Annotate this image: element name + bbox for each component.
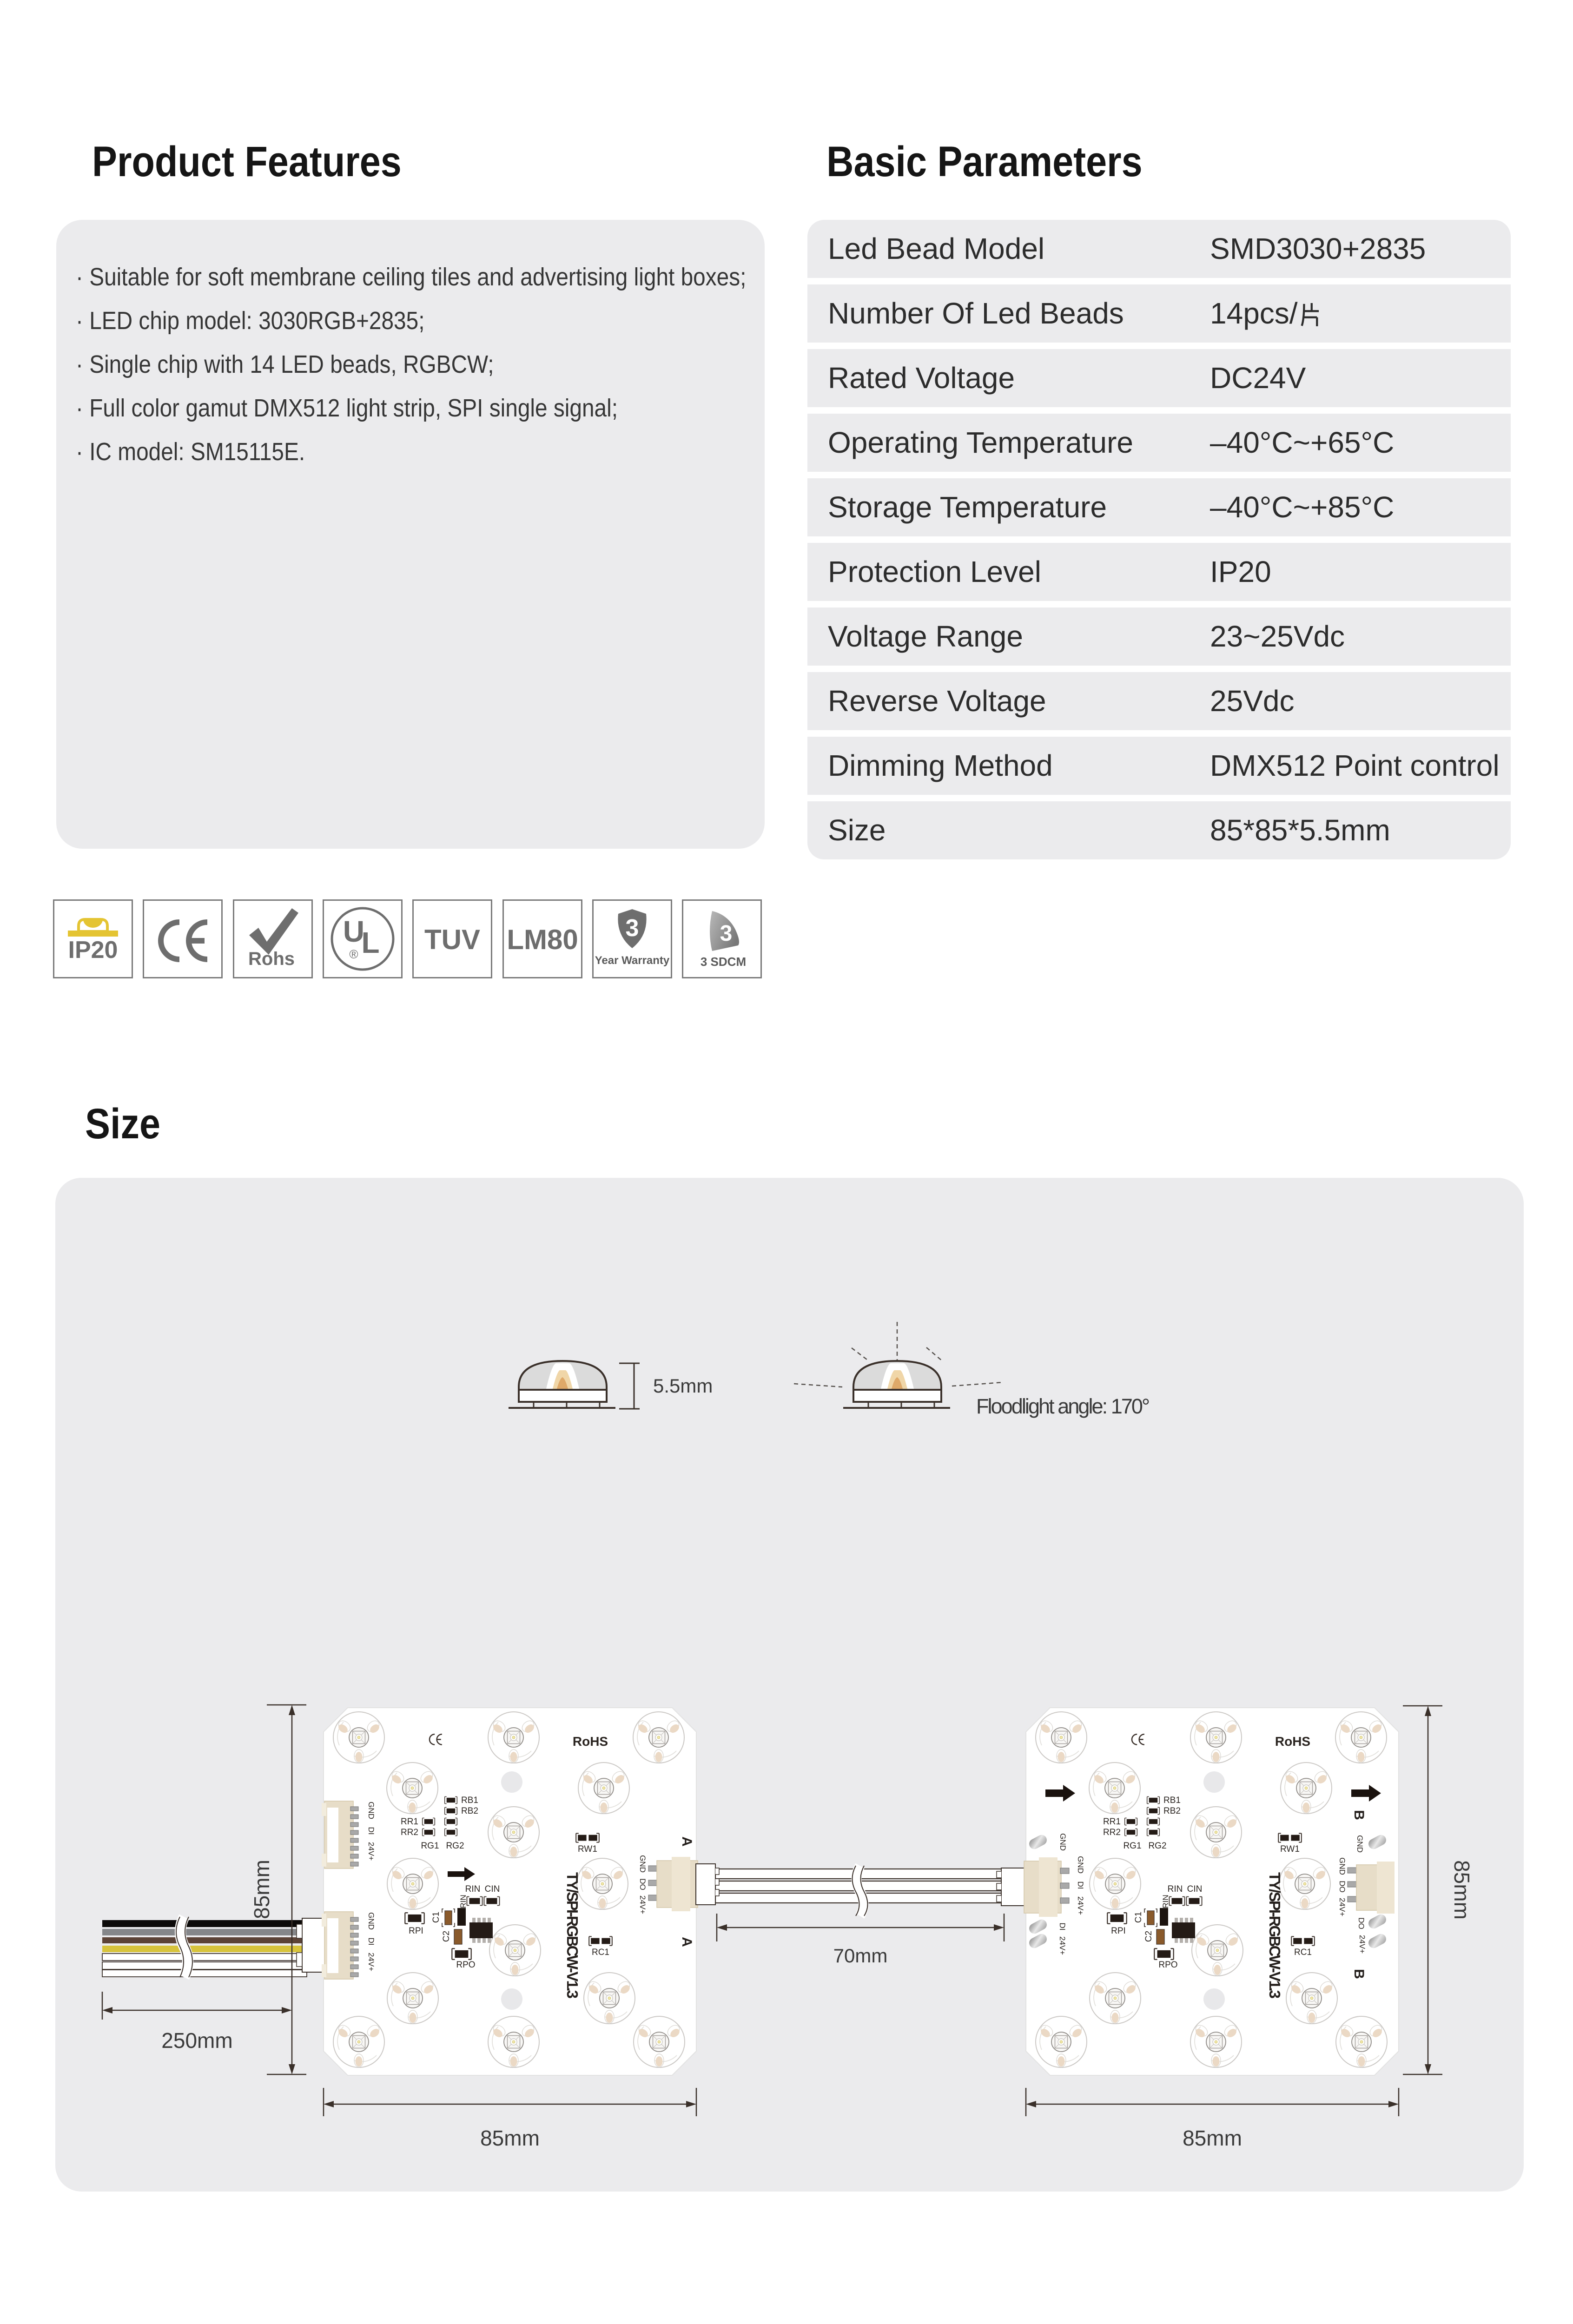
- svg-text:A: A: [679, 1836, 694, 1847]
- svg-text:GND: GND: [638, 1855, 647, 1873]
- svg-text:3 SDCM: 3 SDCM: [701, 955, 746, 969]
- svg-text:85mm: 85mm: [1183, 2126, 1242, 2150]
- svg-text:DO: DO: [1338, 1881, 1347, 1893]
- svg-text:B: B: [1351, 1810, 1367, 1820]
- svg-text:GND: GND: [367, 1912, 376, 1930]
- svg-text:24V+: 24V+: [367, 1953, 376, 1971]
- svg-text:GND: GND: [1338, 1857, 1347, 1875]
- svg-text:DI: DI: [1076, 1882, 1085, 1889]
- svg-text:24V+: 24V+: [1076, 1896, 1085, 1915]
- svg-text:DI: DI: [1058, 1923, 1067, 1931]
- svg-text:250mm: 250mm: [161, 2028, 232, 2053]
- svg-text:TUV: TUV: [424, 924, 480, 955]
- svg-text:Rohs: Rohs: [248, 949, 295, 969]
- svg-text:GND: GND: [1058, 1833, 1067, 1851]
- svg-text:Floodlight angle: 170°: Floodlight angle: 170°: [976, 1394, 1150, 1418]
- svg-text:5.5mm: 5.5mm: [653, 1375, 713, 1397]
- svg-text:GND: GND: [367, 1802, 376, 1819]
- svg-text:24V+: 24V+: [638, 1895, 647, 1914]
- svg-text:GND: GND: [1076, 1856, 1085, 1874]
- svg-text:L: L: [361, 926, 379, 959]
- svg-text:24V+: 24V+: [1058, 1936, 1067, 1955]
- svg-text:DI: DI: [367, 1938, 376, 1946]
- svg-text:3: 3: [626, 915, 639, 942]
- svg-text:GND: GND: [1355, 1835, 1364, 1853]
- svg-text:24V+: 24V+: [1338, 1898, 1347, 1916]
- svg-text:IP20: IP20: [68, 937, 118, 964]
- svg-text:24V+: 24V+: [1358, 1935, 1367, 1954]
- svg-text:Year Warranty: Year Warranty: [595, 954, 670, 967]
- svg-text:B: B: [1351, 1969, 1367, 1979]
- svg-text:DO: DO: [638, 1878, 647, 1890]
- svg-text:85mm: 85mm: [480, 2126, 540, 2150]
- svg-text:85mm: 85mm: [250, 1860, 274, 1919]
- svg-text:24V+: 24V+: [367, 1842, 376, 1861]
- svg-text:85mm: 85mm: [1450, 1860, 1474, 1920]
- svg-text:3: 3: [720, 921, 733, 946]
- svg-text:DO: DO: [1357, 1917, 1366, 1929]
- svg-text:A: A: [679, 1937, 694, 1947]
- svg-text:70mm: 70mm: [833, 1945, 888, 1967]
- svg-text:LM80: LM80: [507, 924, 578, 955]
- svg-text:®: ®: [349, 947, 358, 961]
- svg-text:DI: DI: [367, 1827, 376, 1835]
